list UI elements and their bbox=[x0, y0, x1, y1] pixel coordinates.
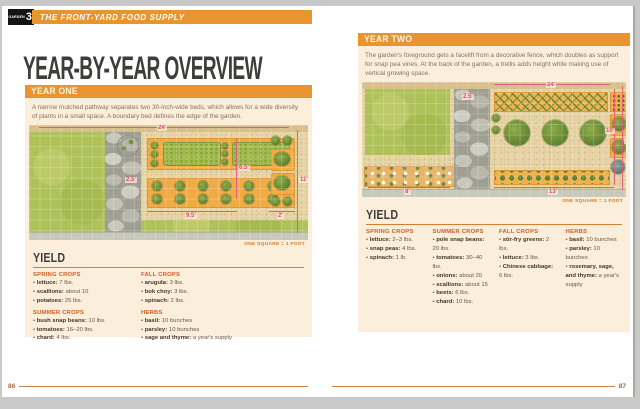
dimension-label: 13' bbox=[548, 189, 558, 195]
yield-heading: YIELD bbox=[366, 207, 622, 225]
crop-item: • spinach: 1 lb. bbox=[366, 254, 423, 263]
left-page-number: 86 bbox=[8, 383, 15, 390]
plant-icon bbox=[152, 194, 162, 204]
crop-item: • tomatoes: 30–40 lbs. bbox=[433, 254, 490, 272]
crop-group-title: SPRING CROPS bbox=[33, 272, 131, 278]
boundary-bed-block bbox=[271, 149, 295, 171]
yield-columns: SPRING CROPS• lettuce: 2–3 lbs.• snap pe… bbox=[366, 229, 622, 311]
dimension-line bbox=[297, 130, 298, 233]
plant-icon bbox=[152, 181, 162, 191]
plant-icon bbox=[492, 114, 500, 122]
chapter-tab-label: GARDEN bbox=[9, 15, 25, 19]
year-one-heading-bar: YEAR ONE bbox=[25, 85, 312, 98]
crop-item: • lettuce: 3 lbs. bbox=[499, 254, 556, 263]
running-head-bar: THE FRONT-YARD FOOD SUPPLY bbox=[32, 10, 312, 24]
dimension-label: 6.5' bbox=[238, 165, 250, 171]
plant-icon bbox=[198, 181, 208, 191]
crop-item: • spinach: 2 lbs. bbox=[141, 297, 239, 306]
dimension-label: 10' bbox=[605, 128, 615, 134]
plant-icon bbox=[222, 159, 228, 165]
crop-group-title: SPRING CROPS bbox=[366, 229, 423, 235]
plant-icon bbox=[221, 194, 231, 204]
dimension-label: 2.5' bbox=[125, 177, 137, 183]
crop-group: HERBS• basil: 10 bunches• parsley: 10 bu… bbox=[141, 310, 239, 344]
folio-rule bbox=[332, 386, 615, 387]
dimension-label: 24' bbox=[157, 125, 167, 131]
plant-icon bbox=[198, 194, 208, 204]
book-title: THE FRONT-YARD FOOD SUPPLY bbox=[32, 13, 185, 22]
plant-icon bbox=[151, 160, 158, 167]
lawn bbox=[29, 132, 105, 232]
year-one-heading: YEAR ONE bbox=[31, 85, 78, 99]
crop-item: • rosemary, sage, and thyme: a year's su… bbox=[566, 263, 623, 290]
plan-scale-caption: ONE SQUARE = 1 FOOT bbox=[365, 199, 623, 204]
plant-icon bbox=[244, 181, 254, 191]
plant-icon bbox=[175, 181, 185, 191]
crop-group-title: HERBS bbox=[566, 229, 623, 235]
crop-group-title: HERBS bbox=[141, 310, 239, 316]
crop-item: • scallions: about 10 bbox=[33, 288, 131, 297]
crop-group-title: FALL CROPS bbox=[499, 229, 556, 235]
yield-column: SPRING CROPS• lettuce: 7 lbs.• scallions… bbox=[33, 272, 131, 347]
crop-item: • basil: 10 bunches bbox=[141, 317, 239, 326]
dimension-line bbox=[147, 211, 237, 212]
tomato-plant bbox=[580, 120, 606, 146]
dimension-line bbox=[614, 89, 615, 185]
plant-icon bbox=[221, 181, 231, 191]
decorative-fence-flower-bed bbox=[364, 166, 456, 187]
crop-item: • snap peas: 4 lbs. bbox=[366, 245, 423, 254]
tomato-plant bbox=[542, 120, 568, 146]
crop-item: • potatoes: 25 lbs. bbox=[33, 297, 131, 306]
crop-item: • bok choy: 3 lbs. bbox=[141, 288, 239, 297]
dimension-line bbox=[269, 211, 295, 212]
yield-column: SUMMER CROPS• pole snap beans: 20 lbs.• … bbox=[433, 229, 490, 311]
crop-item: • parsley: 10 bunches bbox=[141, 326, 239, 335]
plant-icon bbox=[151, 151, 158, 158]
dimension-line bbox=[622, 86, 623, 190]
dimension-label: 24' bbox=[546, 82, 556, 88]
right-page-number: 87 bbox=[619, 383, 626, 390]
plant-icon bbox=[244, 194, 254, 204]
page-title: YEAR-BY-YEAR OVERVIEW bbox=[23, 51, 262, 88]
yield-column: SPRING CROPS• lettuce: 2–3 lbs.• snap pe… bbox=[366, 229, 423, 311]
sidewalk bbox=[29, 232, 308, 240]
crop-item: • sage and thyme: a year's supply bbox=[141, 334, 239, 343]
dimension-label: 2.5' bbox=[462, 94, 474, 100]
lettuce-block bbox=[163, 142, 221, 166]
crop-group: SUMMER CROPS• bush snap beans: 10 lbs.• … bbox=[33, 310, 131, 344]
dimension-line bbox=[368, 187, 450, 188]
plant-icon bbox=[274, 176, 290, 190]
dimension-label: 2' bbox=[277, 213, 284, 219]
year-two-garden-plan: 24' 2.5' 10' 11' 8' 13' bbox=[362, 82, 626, 197]
crop-group: SUMMER CROPS• pole snap beans: 20 lbs.• … bbox=[433, 229, 490, 307]
lawn-edge bbox=[141, 220, 308, 232]
plant-icon bbox=[175, 194, 185, 204]
plan-scale-caption: ONE SQUARE = 1 FOOT bbox=[32, 242, 305, 247]
crop-group: SPRING CROPS• lettuce: 2–3 lbs.• snap pe… bbox=[366, 229, 423, 263]
trellis-row bbox=[494, 92, 608, 112]
year-one-panel: YEAR ONE A narrow mulched pathway separa… bbox=[25, 85, 312, 337]
crop-group-title: SUMMER CROPS bbox=[433, 229, 490, 235]
crop-item: • lettuce: 7 lbs. bbox=[33, 279, 131, 288]
year-two-heading-bar: YEAR TWO bbox=[358, 33, 630, 46]
year-two-heading: YEAR TWO bbox=[364, 33, 412, 47]
folio-rule bbox=[19, 386, 308, 387]
year-one-yield: YIELD SPRING CROPS• lettuce: 7 lbs.• sca… bbox=[33, 250, 304, 347]
crop-item: • bush snap beans: 10 lbs. bbox=[33, 317, 131, 326]
plant-icon bbox=[274, 152, 290, 166]
crop-item: • tomatoes: 16–20 lbs. bbox=[33, 326, 131, 335]
yield-column: HERBS• basil: 10 bunches• parsley: 10 bu… bbox=[566, 229, 623, 311]
crop-item: • onions: about 20 bbox=[433, 272, 490, 281]
plant-icon bbox=[492, 126, 500, 134]
yield-column: FALL CROPS• arugula: 3 lbs.• bok choy: 3… bbox=[141, 272, 239, 347]
dimension-label: 11' bbox=[299, 177, 308, 183]
crop-item: • parsley: 10 bunches bbox=[566, 245, 623, 263]
crop-item: • chard: 4 lbs. bbox=[33, 334, 131, 343]
sidewalk bbox=[362, 189, 626, 197]
yield-columns: SPRING CROPS• lettuce: 7 lbs.• scallions… bbox=[33, 272, 239, 347]
snap-pea-fence-row bbox=[494, 170, 610, 185]
boundary-bed-block bbox=[610, 92, 626, 112]
dimension-label: 11' bbox=[624, 138, 626, 144]
crop-item: • lettuce: 2–3 lbs. bbox=[366, 236, 423, 245]
yield-column: FALL CROPS• stir-fry greens: 2 lbs.• let… bbox=[499, 229, 556, 311]
crop-group: FALL CROPS• arugula: 3 lbs.• bok choy: 3… bbox=[141, 272, 239, 306]
left-folio: 86 bbox=[8, 383, 308, 390]
crop-group-title: FALL CROPS bbox=[141, 272, 239, 278]
plant-icon bbox=[222, 151, 228, 157]
plant-icon bbox=[222, 143, 228, 149]
crop-item: • basil: 10 bunches bbox=[566, 236, 623, 245]
year-one-garden-plan: 24' 11' 6.5' 2.5' 9.5' 2' bbox=[29, 125, 308, 240]
crop-item: • chard: 10 lbs. bbox=[433, 298, 490, 307]
year-two-yield: YIELD SPRING CROPS• lettuce: 2–3 lbs.• s… bbox=[366, 207, 622, 311]
dimension-label: 8' bbox=[404, 189, 411, 195]
crop-group: SPRING CROPS• lettuce: 7 lbs.• scallions… bbox=[33, 272, 131, 306]
dimension-label: 9.5' bbox=[185, 213, 197, 219]
book-spread-photo: GARDEN 3 THE FRONT-YARD FOOD SUPPLY YEAR… bbox=[0, 0, 640, 409]
crop-group: FALL CROPS• stir-fry greens: 2 lbs.• let… bbox=[499, 229, 556, 280]
right-folio: 87 bbox=[332, 383, 626, 390]
year-two-description: The garden's foreground gets a facelift … bbox=[358, 46, 630, 80]
crop-item: • pole snap beans: 20 lbs. bbox=[433, 236, 490, 254]
book-spread: GARDEN 3 THE FRONT-YARD FOOD SUPPLY YEAR… bbox=[2, 6, 635, 397]
year-two-panel: YEAR TWO The garden's foreground gets a … bbox=[358, 33, 630, 332]
crop-item: • Chinese cabbage: 6 lbs. bbox=[499, 263, 556, 281]
yield-heading: YIELD bbox=[33, 250, 304, 268]
chapter-tab: GARDEN 3 bbox=[8, 9, 34, 25]
dimension-line bbox=[236, 139, 237, 199]
crop-item: • scallions: about 15 bbox=[433, 281, 490, 290]
tomato-plant bbox=[504, 120, 530, 146]
crop-item: • stir-fry greens: 2 lbs. bbox=[499, 236, 556, 254]
crop-group: HERBS• basil: 10 bunches• parsley: 10 bu… bbox=[566, 229, 623, 289]
year-one-description: A narrow mulched pathway separates two 3… bbox=[25, 98, 312, 123]
flagstone-path bbox=[454, 89, 490, 189]
crop-item: • arugula: 3 lbs. bbox=[141, 279, 239, 288]
dimension-line bbox=[494, 187, 614, 188]
plant-icon bbox=[151, 142, 158, 149]
crop-item: • beets: 6 lbs. bbox=[433, 289, 490, 298]
boundary-bed-block bbox=[271, 173, 295, 195]
lawn bbox=[365, 89, 450, 155]
crop-group-title: SUMMER CROPS bbox=[33, 310, 131, 316]
